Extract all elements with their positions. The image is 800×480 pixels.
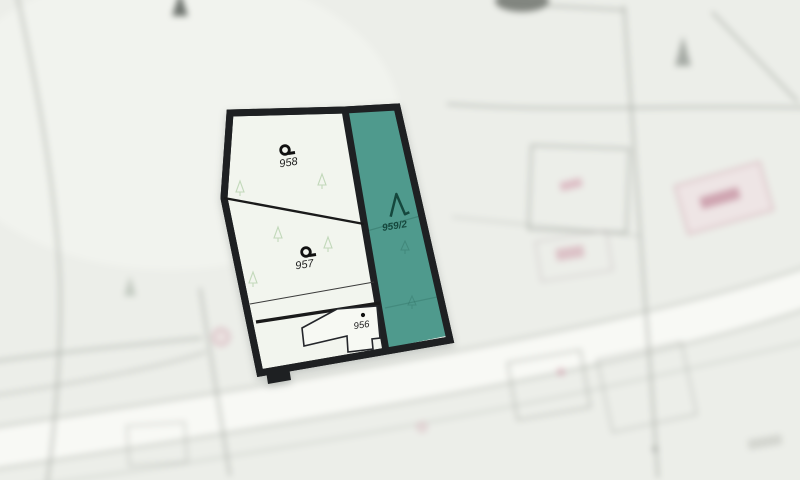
building-dot xyxy=(361,313,365,317)
cadastral-map-view: 258 958 957 956 959/2 xyxy=(0,0,800,480)
highlighted-parcels-svg: 258 958 957 956 959/2 xyxy=(0,0,800,480)
highlighted-parcel-group: 258 958 957 956 959/2 xyxy=(224,107,450,384)
